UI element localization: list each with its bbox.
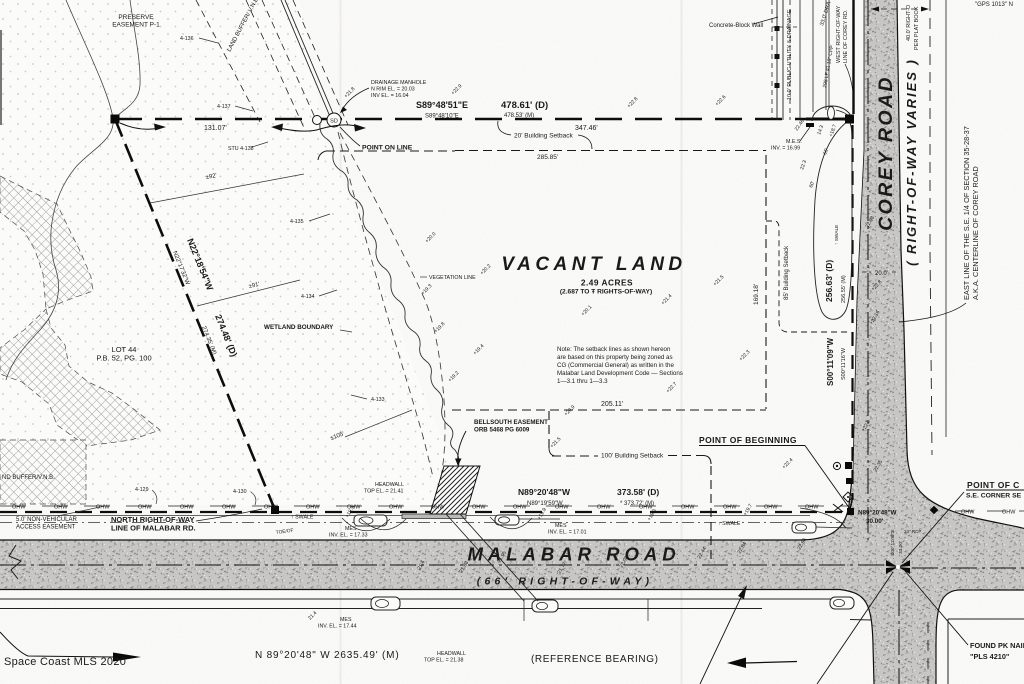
svg-text:85' Building Setback: 85' Building Setback [784,245,790,300]
svg-text:ACCESS EASEMENT: ACCESS EASEMENT [16,525,76,531]
svg-text:WEST RIGHT-OF-WAY: WEST RIGHT-OF-WAY [836,5,842,63]
svg-text:CG (Commercial General) as wri: CG (Commercial General) as written in th… [557,362,674,369]
svg-text:INV. EL. = 17.33: INV. EL. = 17.33 [329,533,368,539]
svg-text:40.0' RIGHT-O: 40.0' RIGHT-O [906,4,912,41]
svg-text:DRAINAGE MANHOLE: DRAINAGE MANHOLE [371,80,427,86]
svg-text:(2.687 TO Ŧ RIGHTS-OF-WAY): (2.687 TO Ŧ RIGHTS-OF-WAY) [560,289,652,296]
svg-text:N89°20'48"W: N89°20'48"W [858,509,897,517]
svg-text:POINT OF BEGINNING: POINT OF BEGINNING [699,435,797,445]
svg-text:N RIM EL. = 20.03: N RIM EL. = 20.03 [371,87,415,93]
svg-text:STU 4-138: STU 4-138 [228,146,254,152]
svg-text:OHW: OHW [431,505,445,511]
svg-text:5.0' NON-VEHICULAR: 5.0' NON-VEHICULAR [16,517,77,523]
svg-text:4-135: 4-135 [290,219,304,225]
svg-text:Malabar Land Development Code: Malabar Land Development Code — Sections [557,370,683,377]
svg-text:N89°20'48"W: N89°20'48"W [518,487,571,497]
svg-text:"PLS 4210": "PLS 4210" [970,652,1009,661]
svg-text:256.55' (M): 256.55' (M) [841,275,847,303]
svg-text:"GPS 1013" N: "GPS 1013" N [975,2,1013,8]
svg-text:OHW: OHW [12,505,26,511]
svg-text:347.46': 347.46' [575,125,598,132]
svg-text:POINT ON LINE: POINT ON LINE [362,145,413,152]
svg-text:P.B. 52, PG. 100: P.B. 52, PG. 100 [96,354,151,363]
svg-text:20' Building Setback: 20' Building Setback [514,133,573,140]
svg-text:OHW: OHW [472,505,486,511]
svg-text:N 89°20'48" W 2635.49' (M): N 89°20'48" W 2635.49' (M) [255,650,399,661]
svg-text:ORB 5468 PG 6009: ORB 5468 PG 6009 [474,427,530,434]
svg-text:MES: MES [345,526,357,532]
svg-text:WETLAND BOUNDARY: WETLAND BOUNDARY [264,324,334,331]
svg-text:TOP EL. = 21.41: TOP EL. = 21.41 [364,489,403,495]
svg-text:LINE OF MALABAR RD.: LINE OF MALABAR RD. [111,524,196,533]
svg-text:OHW: OHW [961,510,975,516]
svg-text:30.00': 30.00' [866,518,884,525]
svg-text:Note: The setback lines as sho: Note: The setback lines as shown hereon [557,346,671,353]
svg-text:S00°11'16"W: S00°11'16"W [841,347,847,380]
svg-text:(66' RIGHT-OF-WAY): (66' RIGHT-OF-WAY) [477,576,653,588]
svg-text:285.85': 285.85' [537,154,558,161]
svg-text:4-133: 4-133 [371,397,385,403]
svg-text:EAST LINE OF THE S.E. 1/4 OF S: EAST LINE OF THE S.E. 1/4 OF SECTION 35-… [962,126,971,300]
svg-text:OHW: OHW [264,505,278,511]
svg-text:TOP EL. = 21.38: TOP EL. = 21.38 [424,658,463,664]
svg-text:POINT OF C: POINT OF C [967,480,1020,490]
svg-text:OHW: OHW [138,505,152,511]
svg-text:HEADWALL: HEADWALL [437,651,466,657]
svg-text:VACANT LAND: VACANT LAND [501,254,686,275]
svg-text:INV. EL. = 17.44: INV. EL. = 17.44 [318,624,357,630]
svg-text:24" RCP: 24" RCP [904,529,921,534]
svg-text:10.0' PUBLIC UTILITY & DRAINAG: 10.0' PUBLIC UTILITY & DRAINAGE [787,9,793,100]
svg-text:PER PLAT BOOK: PER PLAT BOOK [914,6,920,50]
svg-text:Space Coast MLS 2020: Space Coast MLS 2020 [4,656,126,668]
svg-text:478.53' (M): 478.53' (M) [504,113,534,119]
svg-text:FOUND PK NAIL: FOUND PK NAIL [970,641,1024,650]
svg-text:A.K.A. CENTERLINE OF COREY ROA: A.K.A. CENTERLINE OF COREY ROAD [971,166,980,300]
svg-text:OHW: OHW [389,505,403,511]
svg-text:( RIGHT-OF-WAY VARIES ): ( RIGHT-OF-WAY VARIES ) [904,58,919,266]
svg-text:BELLSOUTH EASEMENT: BELLSOUTH EASEMENT [474,419,548,426]
svg-text:S89°48'51"E: S89°48'51"E [416,100,468,110]
svg-text:OHW: OHW [764,505,778,511]
svg-text:M.E.S.: M.E.S. [786,139,802,145]
svg-text:MES: MES [340,617,352,623]
svg-text:OHW: OHW [54,505,68,511]
svg-text:373.58' (D): 373.58' (D) [617,487,659,497]
svg-text:OHW: OHW [180,505,194,511]
svg-text:INV EL. = 16.04: INV EL. = 16.04 [371,93,409,99]
svg-text:Concrete-Block Wall: Concrete-Block Wall [709,23,763,29]
svg-text:20.0': 20.0' [875,271,888,277]
svg-text:HEADWALL: HEADWALL [375,482,404,488]
svg-text:4-129: 4-129 [135,487,149,493]
svg-text:LINE OF COREY RD.: LINE OF COREY RD. [843,9,849,63]
svg-text:33.00': 33.00' [898,541,904,554]
svg-text:OHW: OHW [306,505,320,511]
svg-text:INV. EL. = 17.01: INV. EL. = 17.01 [548,530,587,536]
svg-text:are based on this property bei: are based on this property being zoned a… [557,354,673,361]
svg-text:S89°48'10"E: S89°48'10"E [425,114,459,120]
svg-text:205.11': 205.11' [601,401,623,408]
svg-text:↑ SWALE: ↑ SWALE [291,515,314,521]
svg-text:COREY ROAD: COREY ROAD [875,75,897,231]
svg-text:1—3.1 thru 1—3.3: 1—3.1 thru 1—3.3 [557,378,608,385]
svg-text:INV. = 16.99: INV. = 16.99 [771,146,800,152]
svg-text:OHW: OHW [513,505,527,511]
svg-text:OHW: OHW [723,505,737,511]
svg-text:4-137: 4-137 [217,104,231,110]
svg-text:S00°11'09"E: S00°11'09"E [890,529,896,556]
svg-text:MES: MES [555,523,567,529]
svg-text:169.18': 169.18' [753,284,760,305]
svg-text:478.61' (D): 478.61' (D) [501,100,548,111]
svg-text:OHW: OHW [597,505,611,511]
svg-text:S.E. CORNER SE: S.E. CORNER SE [966,493,1022,500]
svg-text:PRESERVE: PRESERVE [118,14,154,21]
svg-text:↑ SWALE: ↑ SWALE [718,521,741,527]
svg-text:↑ SWALE: ↑ SWALE [834,225,840,245]
svg-text:(REFERENCE BEARING): (REFERENCE BEARING) [531,654,659,665]
svg-text:OHW: OHW [222,505,236,511]
svg-text:VEGETATION LINE: VEGETATION LINE [429,275,476,281]
svg-text:OHW: OHW [555,505,569,511]
svg-text:100' Building Setback: 100' Building Setback [601,453,664,460]
svg-text:S00°11'09"W: S00°11'09"W [826,338,835,386]
svg-text:OHW: OHW [805,505,819,511]
svg-text:SD: SD [330,119,338,125]
svg-text:256.63' (D): 256.63' (D) [824,260,834,302]
svg-text:OHW: OHW [681,505,695,511]
svg-text:EASEMENT P-1: EASEMENT P-1 [112,22,160,29]
svg-text:4-130: 4-130 [233,489,247,495]
svg-text:4-136: 4-136 [180,36,194,42]
svg-text:131.07': 131.07' [204,125,227,132]
svg-text:ND BUFFER/V.N.B.: ND BUFFER/V.N.B. [2,475,55,481]
svg-text:OHW: OHW [96,505,110,511]
svg-text:OHW: OHW [1002,510,1016,516]
svg-text:2.49 ACRES: 2.49 ACRES [581,278,633,288]
svg-text:4-134: 4-134 [301,294,315,300]
